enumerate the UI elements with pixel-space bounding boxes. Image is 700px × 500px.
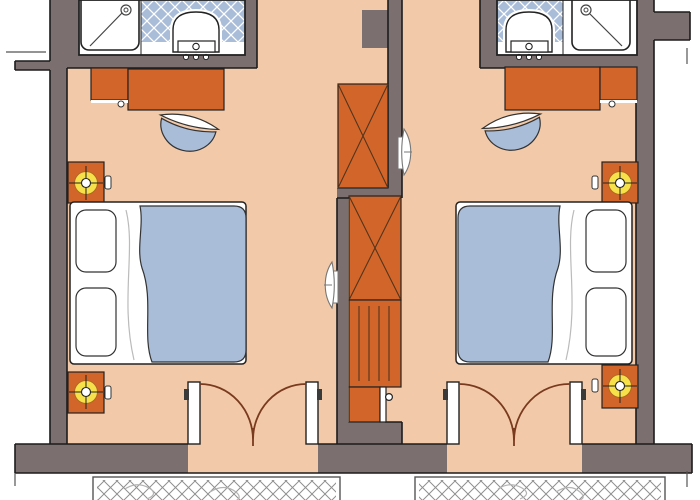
balcony-hatch [419, 480, 661, 500]
switch-left-north [105, 176, 111, 189]
balcony-hatch [97, 480, 336, 500]
lamp-bulb [82, 179, 91, 188]
party-wall-base-block [337, 422, 402, 444]
south-wall-right [582, 444, 692, 473]
shower-tray [572, 0, 630, 50]
right-wardrobe [349, 196, 401, 300]
door-hinge [317, 389, 322, 400]
shelf-unit-body [349, 300, 401, 387]
left-cabinet-knob [118, 101, 124, 107]
left-door-passage-floor [188, 444, 318, 473]
left-wardrobe [338, 84, 388, 188]
left-desk [128, 69, 224, 110]
left-bed [70, 202, 246, 364]
pillow [76, 210, 116, 272]
left-side-cabinet [91, 68, 128, 100]
shelf-unit [349, 300, 401, 387]
switch-right-south [592, 379, 598, 392]
left-bathroom [79, 0, 245, 60]
toilet-button [193, 43, 199, 49]
minibar-body [349, 387, 380, 422]
right-bed [456, 202, 632, 364]
toilet-icon [506, 12, 552, 60]
left-balcony [93, 477, 340, 500]
right-side-cabinet [600, 67, 637, 100]
left-bathroom-south-wall [67, 55, 257, 68]
east-wall-stub [654, 12, 690, 40]
right-desk [505, 67, 600, 110]
right-bathroom-south-wall [480, 55, 654, 68]
left-bathroom-east-wall [245, 0, 257, 57]
shower-drain-center [124, 8, 128, 12]
duvet [140, 206, 246, 362]
south-wall-left [15, 444, 188, 473]
switch-right-north [592, 176, 598, 189]
toilet-button [526, 43, 532, 49]
right-balcony [415, 477, 665, 500]
door-hinge [184, 389, 189, 400]
right-bathroom [497, 0, 637, 60]
duct-block [362, 10, 388, 48]
switch-left-south [105, 386, 111, 399]
right-cabinet-knob [609, 101, 615, 107]
party-wall-lower [337, 188, 348, 444]
toilet-icon [173, 12, 219, 60]
west-wall-stub [15, 61, 52, 70]
minibar-door [380, 387, 386, 422]
door-leaf [570, 382, 582, 444]
left-bathroom-west-wall [67, 0, 79, 57]
door-leaf [306, 382, 318, 444]
lamp-bulb [82, 388, 91, 397]
shower-tray [81, 0, 139, 50]
minibar-knob [386, 394, 393, 401]
right-door-passage-floor [447, 444, 582, 473]
floor-plan-page [0, 0, 700, 500]
pillow [586, 288, 626, 356]
minibar [349, 387, 392, 422]
duvet [458, 206, 560, 362]
pillow [76, 288, 116, 356]
pillow [586, 210, 626, 272]
door-hinge [581, 389, 586, 400]
south-wall-center [318, 444, 447, 473]
right-cabinet-gap [600, 100, 637, 103]
floor-plan [0, 0, 700, 500]
door-hinge [443, 389, 448, 400]
east-exterior-wall [636, 0, 654, 444]
shower-drain-center [584, 8, 588, 12]
door-leaf [188, 382, 200, 444]
lamp-bulb [616, 382, 625, 391]
west-exterior-wall [50, 0, 67, 444]
door-leaf [447, 382, 459, 444]
lamp-bulb [616, 179, 625, 188]
right-bathroom-west-wall [480, 0, 497, 57]
